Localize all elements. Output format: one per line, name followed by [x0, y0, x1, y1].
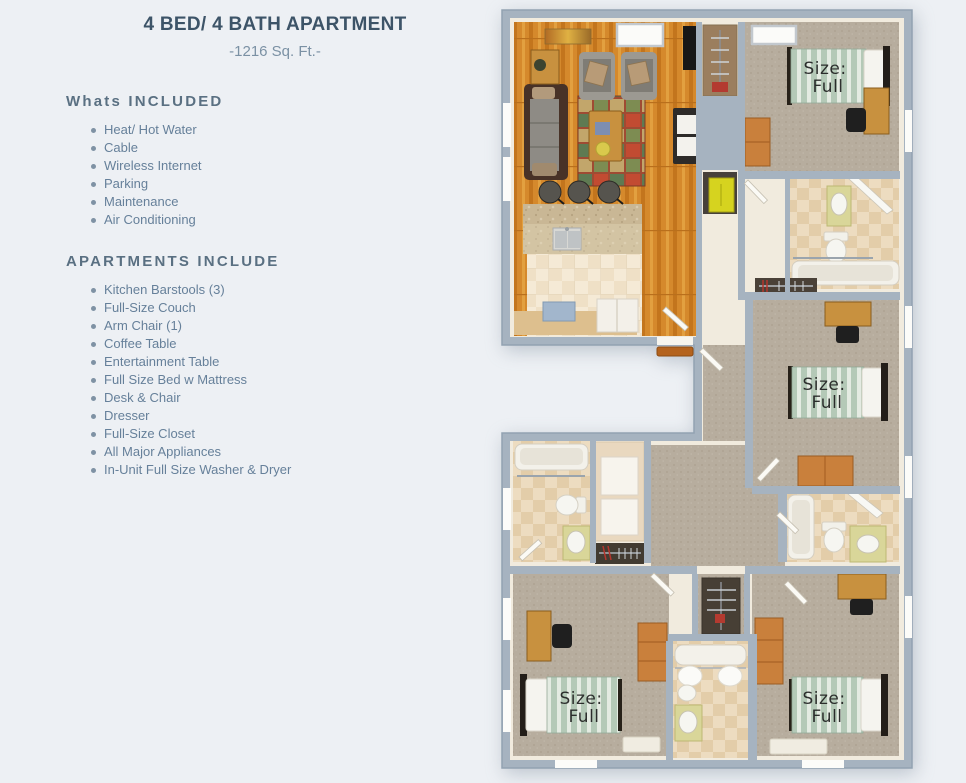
- bathtub: [515, 444, 588, 470]
- closet: [595, 543, 644, 564]
- plant: [534, 59, 546, 71]
- couch: [524, 84, 568, 180]
- desk-chair: [846, 108, 866, 132]
- vanity-sink: [827, 186, 851, 226]
- list-item: Cable: [90, 139, 497, 157]
- tv-stand: [673, 108, 700, 164]
- bathroom-4: [673, 641, 748, 758]
- washer: [601, 457, 638, 495]
- toilet: [678, 685, 696, 701]
- kitchen-counter: [523, 204, 642, 254]
- tv: [683, 26, 696, 70]
- list-item: Parking: [90, 175, 497, 193]
- armchair: [579, 52, 615, 100]
- list-item: Air Conditioning: [90, 211, 497, 229]
- wall-art: [545, 29, 591, 44]
- dresser: [638, 623, 667, 681]
- refrigerator: [597, 299, 638, 332]
- bathroom-2: [787, 490, 899, 562]
- section-whats-included: Whats INCLUDED Heat/ Hot WaterCableWirel…: [0, 93, 497, 229]
- page-subtitle: -1216 Sq. Ft.-: [55, 43, 495, 60]
- shower-curtain: [718, 666, 742, 686]
- laundry-closet: [595, 442, 644, 564]
- side-table: [531, 50, 559, 84]
- kitchen-sink: [553, 227, 581, 250]
- list-item: Coffee Table: [90, 335, 497, 353]
- skylight: [752, 26, 796, 44]
- floorplan: Size: Full: [497, 8, 927, 770]
- skylight: [617, 24, 663, 46]
- list-item: Dresser: [90, 407, 497, 425]
- coffee-table: [589, 111, 622, 161]
- water-heater: [703, 172, 737, 214]
- armchair: [621, 52, 657, 100]
- bathroom-3: [513, 441, 590, 562]
- kitchen: [514, 181, 642, 336]
- whats-included-heading: Whats INCLUDED: [66, 93, 497, 110]
- list-item: Full-Size Couch: [90, 299, 497, 317]
- list-item: Wireless Internet: [90, 157, 497, 175]
- list-item: Arm Chair (1): [90, 317, 497, 335]
- entry-threshold: [657, 337, 693, 345]
- apartments-include-list: Kitchen Barstools (3)Full-Size CouchArm …: [90, 281, 497, 479]
- list-item: Kitchen Barstools (3): [90, 281, 497, 299]
- toilet: [822, 522, 846, 552]
- bathroom-1: [790, 175, 899, 289]
- desk-chair: [552, 624, 572, 648]
- apartment-listing-page: 4 BED/ 4 BATH APARTMENT -1216 Sq. Ft.- W…: [0, 0, 966, 783]
- list-item: Desk & Chair: [90, 389, 497, 407]
- vanity-sink: [563, 526, 590, 560]
- info-panel: 4 BED/ 4 BATH APARTMENT -1216 Sq. Ft.- W…: [0, 0, 497, 479]
- bedroom-3: Size: Full: [513, 574, 669, 756]
- bedroom-1: Size: Full: [745, 22, 899, 171]
- list-item: Entertainment Table: [90, 353, 497, 371]
- list-item: Maintenance: [90, 193, 497, 211]
- list-item: Full-Size Closet: [90, 425, 497, 443]
- list-item: Heat/ Hot Water: [90, 121, 497, 139]
- header: 4 BED/ 4 BATH APARTMENT -1216 Sq. Ft.-: [55, 14, 495, 60]
- whats-included-list: Heat/ Hot WaterCableWireless InternetPar…: [90, 121, 497, 229]
- dryer: [601, 499, 638, 535]
- doormat: [623, 737, 660, 752]
- shelf-closet: [702, 578, 740, 634]
- floorplan-svg: Size: Full: [497, 8, 927, 770]
- shower-curtain: [678, 666, 702, 686]
- entry-doormat: [657, 347, 693, 356]
- dresser: [798, 456, 853, 486]
- toilet: [556, 495, 586, 515]
- desk-chair: [850, 599, 873, 615]
- page-title: 4 BED/ 4 BATH APARTMENT: [55, 14, 495, 36]
- dishwasher: [543, 302, 575, 321]
- section-apartments-include: APARTMENTS INCLUDE Kitchen Barstools (3)…: [0, 253, 497, 479]
- doormat: [770, 739, 827, 754]
- desk-chair: [836, 326, 859, 343]
- vanity-sink: [850, 526, 886, 562]
- list-item: Full Size Bed w Mattress: [90, 371, 497, 389]
- list-item: All Major Appliances: [90, 443, 497, 461]
- utility-closet: [703, 25, 737, 96]
- vanity-sink: [675, 705, 702, 741]
- list-item: In-Unit Full Size Washer & Dryer: [90, 461, 497, 479]
- bedroom-4: Size: Full: [752, 574, 899, 756]
- dresser: [755, 618, 783, 684]
- apartments-include-heading: APARTMENTS INCLUDE: [66, 253, 497, 270]
- dresser: [745, 118, 770, 166]
